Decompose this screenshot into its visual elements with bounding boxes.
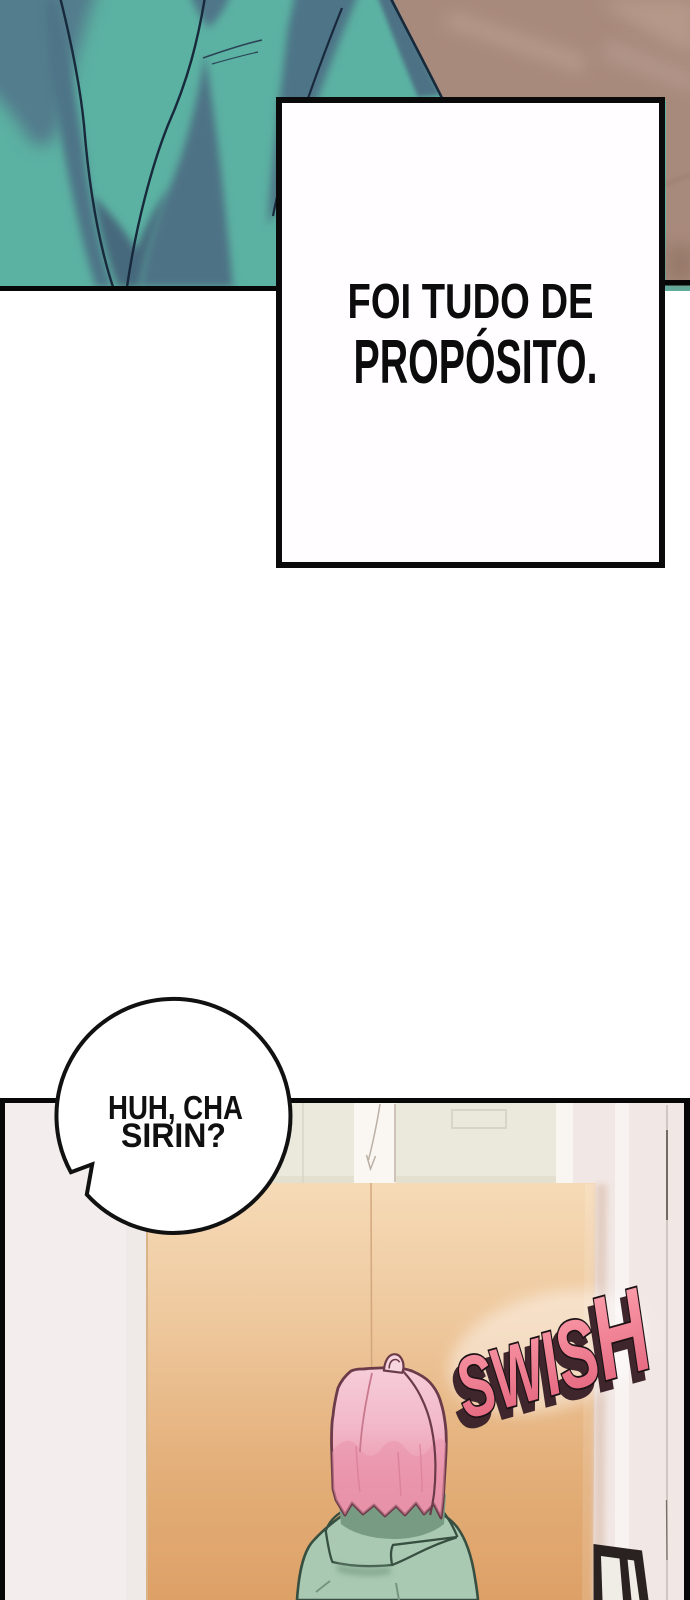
svg-text:FOI TUDO DE: FOI TUDO DE	[348, 275, 594, 329]
svg-text:PROPÓSITO.: PROPÓSITO.	[354, 328, 598, 397]
svg-text:SIRIN?: SIRIN?	[121, 1117, 226, 1155]
